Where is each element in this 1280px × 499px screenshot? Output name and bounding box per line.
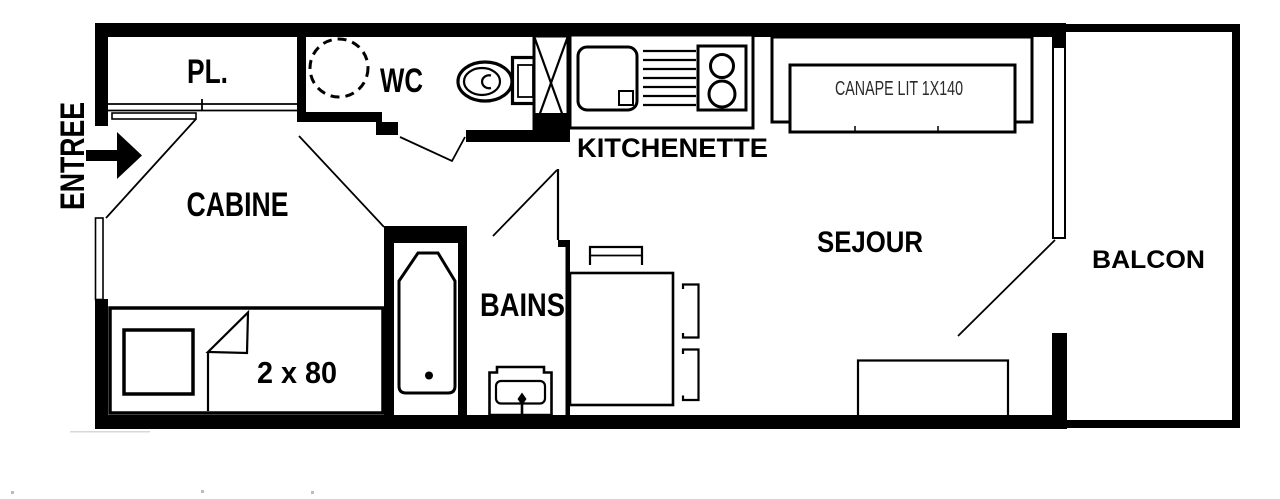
bathtub-drain bbox=[425, 372, 433, 380]
burner-icon bbox=[709, 81, 735, 107]
water-heater-icon bbox=[310, 39, 368, 97]
wall-bains-door-jamb bbox=[558, 240, 570, 247]
washbasin-outline bbox=[490, 367, 552, 415]
floor-plan-drawing: ENTREE PL. WC bbox=[0, 0, 1280, 499]
label-bains: BAINS bbox=[480, 287, 565, 323]
label-wc: WC bbox=[380, 62, 423, 100]
artifact-dot bbox=[311, 491, 314, 494]
label-cabine: CABINE bbox=[187, 186, 289, 224]
label-sejour: SEJOUR bbox=[817, 226, 923, 259]
wall-below-closet bbox=[297, 112, 382, 122]
entry-door-leaf bbox=[112, 113, 196, 119]
balcon-area: BALCON bbox=[1092, 246, 1205, 274]
floor-plan: ENTREE PL. WC bbox=[0, 0, 1280, 499]
label-balcon: BALCON bbox=[1092, 246, 1205, 274]
cabine-window bbox=[96, 218, 104, 300]
burner-icon bbox=[711, 55, 734, 78]
vent-shaft-base bbox=[533, 113, 570, 132]
vent-shaft bbox=[533, 36, 570, 132]
wall-step-block bbox=[376, 122, 398, 135]
pillow bbox=[124, 330, 193, 394]
bunk-bed: 2 x 80 bbox=[110, 308, 383, 413]
sink-drainer bbox=[643, 51, 696, 105]
wall-right-top-corner bbox=[1052, 23, 1066, 47]
wall-bottom bbox=[95, 415, 1067, 429]
sofa-bed: CANAPE LIT 1X140 bbox=[772, 37, 1032, 132]
label-entree: ENTREE bbox=[54, 102, 92, 210]
wall-right-lower bbox=[1052, 333, 1067, 429]
dining-table bbox=[570, 273, 673, 405]
label-kitchenette: KITCHENETTE bbox=[577, 133, 768, 163]
wall-left-upper bbox=[95, 23, 108, 126]
wall-closet-right bbox=[297, 35, 306, 113]
label-pl: PL. bbox=[187, 53, 228, 91]
wall-left-lower bbox=[95, 299, 108, 429]
wall-balcony-right bbox=[1232, 24, 1240, 428]
label-bed-size: 2 x 80 bbox=[257, 355, 337, 390]
kitchenette: KITCHENETTE bbox=[570, 35, 768, 163]
balcony-window bbox=[1053, 47, 1065, 238]
label-sofa-bed: CANAPE LIT 1X140 bbox=[835, 78, 963, 100]
artifact-line bbox=[70, 431, 150, 433]
bathtub bbox=[399, 253, 455, 393]
sink-drain bbox=[619, 91, 633, 105]
wall-balcony-top bbox=[1066, 24, 1240, 32]
artifact-dot bbox=[201, 490, 204, 493]
washbasin bbox=[490, 367, 552, 419]
wall-balcony-bottom bbox=[1066, 420, 1240, 428]
artifact-dot bbox=[11, 491, 14, 494]
